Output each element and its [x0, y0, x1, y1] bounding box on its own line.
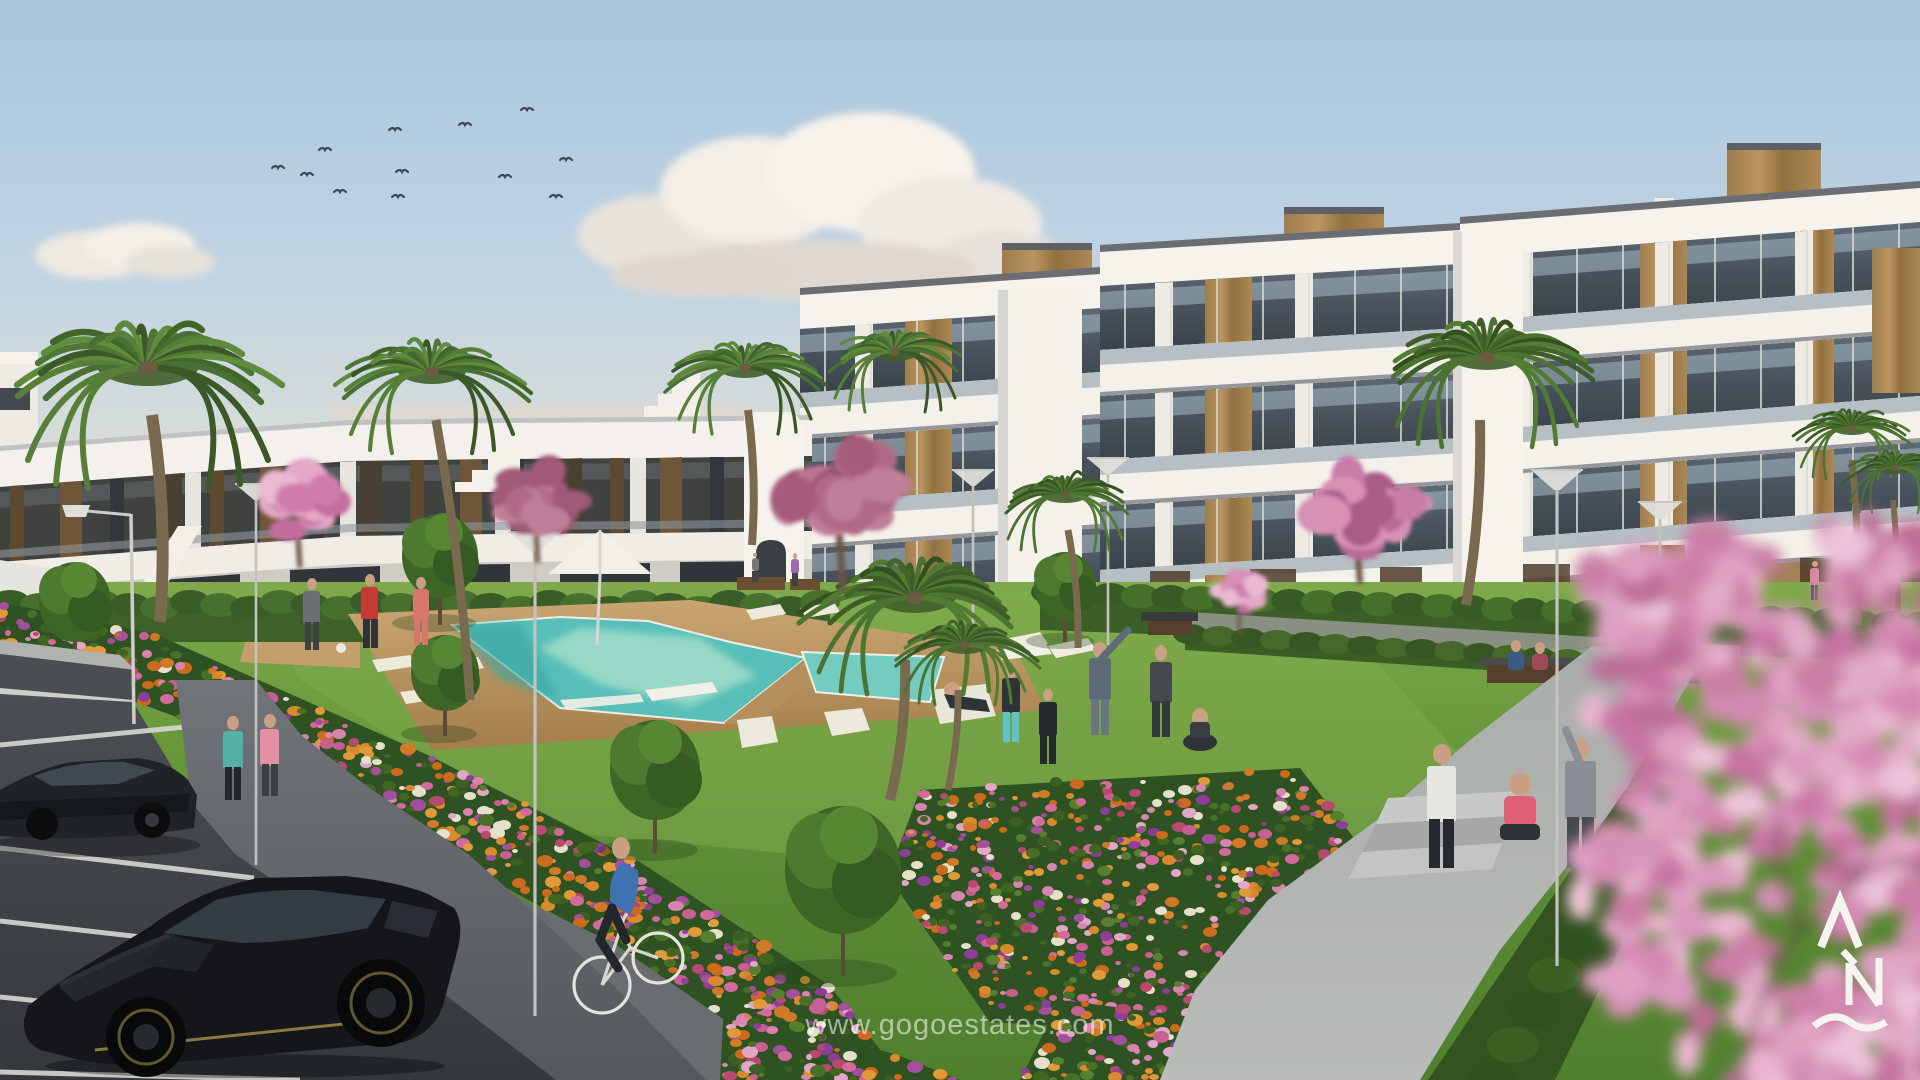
svg-text:www.gogoestates.com: www.gogoestates.com [804, 1009, 1114, 1041]
